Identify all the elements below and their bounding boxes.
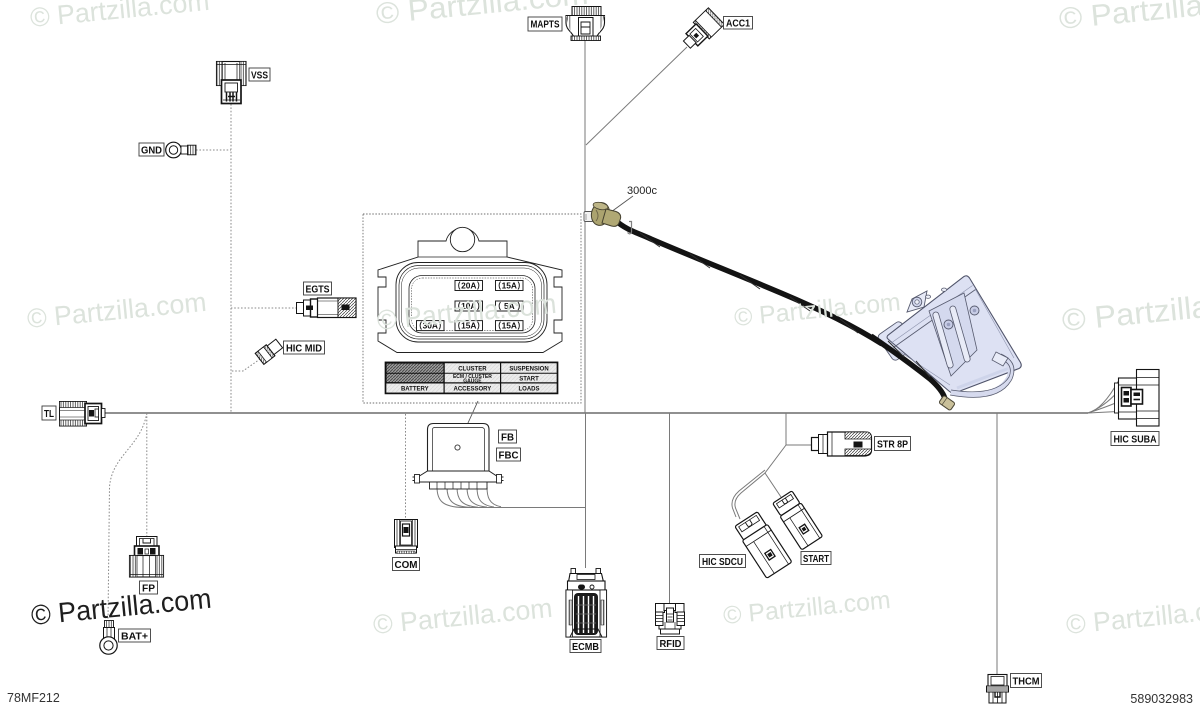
svg-text:BAT+: BAT+ [121,631,148,642]
svg-text:3000c: 3000c [627,185,657,197]
svg-text:VSS: VSS [251,70,268,81]
svg-text:ACC1: ACC1 [726,19,750,30]
svg-text:20A: 20A [461,281,476,291]
svg-text:RFID: RFID [660,639,682,650]
svg-text:TL: TL [44,409,54,420]
svg-text:SUSPENSION: SUSPENSION [509,366,548,372]
svg-text:THCM: THCM [1013,676,1040,687]
svg-text:ACCESSORY: ACCESSORY [454,387,492,393]
svg-text:GND: GND [141,145,162,156]
svg-text:CLUSTER: CLUSTER [458,366,487,372]
svg-text:START: START [519,377,539,383]
svg-text:FB: FB [501,432,514,443]
svg-text:ECMB: ECMB [572,642,599,653]
svg-text:BATTERY: BATTERY [401,387,429,393]
svg-text:589032983: 589032983 [1130,692,1193,706]
svg-text:START: START [803,554,829,565]
svg-text:EGTS: EGTS [306,284,330,295]
svg-text:LOADS: LOADS [519,387,540,393]
svg-text:HIC SDCU: HIC SDCU [702,557,743,568]
svg-text:COM: COM [395,560,418,571]
svg-text:HIC SUBA: HIC SUBA [1114,434,1157,445]
svg-text:78MF212: 78MF212 [7,691,60,705]
svg-text:15A: 15A [502,281,517,291]
svg-text:STR 8P: STR 8P [877,439,908,450]
svg-text:MAPTS: MAPTS [531,20,560,31]
svg-text:GAUGE: GAUGE [463,378,482,384]
svg-text:HIC MID: HIC MID [286,343,322,354]
svg-text:FBC: FBC [499,450,519,461]
